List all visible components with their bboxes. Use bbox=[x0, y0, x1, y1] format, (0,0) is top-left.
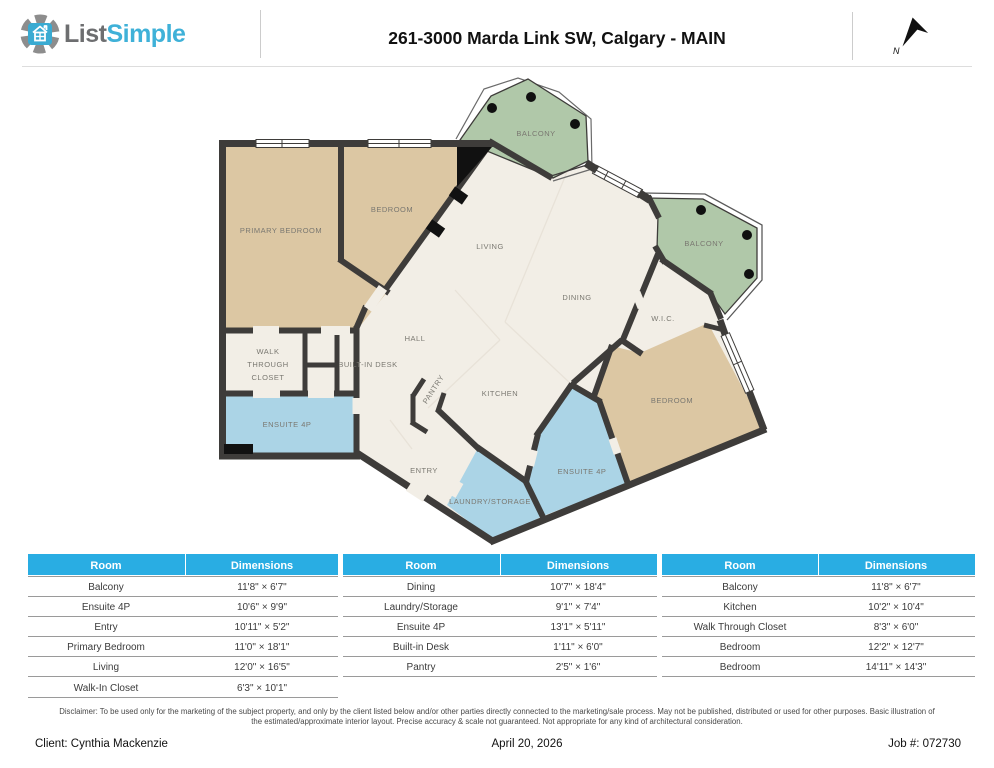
svg-text:14'11" × 14'3": 14'11" × 14'3" bbox=[866, 662, 927, 673]
svg-text:ENTRY: ENTRY bbox=[410, 466, 438, 475]
svg-text:Dimensions: Dimensions bbox=[231, 560, 293, 572]
svg-text:10'2" × 10'4": 10'2" × 10'4" bbox=[868, 602, 924, 613]
svg-text:Living: Living bbox=[93, 662, 119, 673]
svg-text:LIVING: LIVING bbox=[476, 242, 504, 251]
svg-text:BALCONY: BALCONY bbox=[684, 239, 723, 248]
svg-text:10'6" × 9'9": 10'6" × 9'9" bbox=[237, 602, 288, 613]
svg-text:8'3" × 6'0": 8'3" × 6'0" bbox=[874, 622, 919, 633]
svg-text:Bedroom: Bedroom bbox=[720, 662, 761, 673]
svg-text:BEDROOM: BEDROOM bbox=[371, 205, 413, 214]
svg-text:LAUNDRY/STORAGE: LAUNDRY/STORAGE bbox=[449, 497, 531, 506]
svg-text:Dining: Dining bbox=[407, 582, 435, 593]
svg-text:ENSUITE 4P: ENSUITE 4P bbox=[558, 467, 607, 476]
svg-text:Balcony: Balcony bbox=[88, 582, 124, 593]
svg-text:Ensuite 4P: Ensuite 4P bbox=[397, 622, 446, 633]
svg-text:W.I.C.: W.I.C. bbox=[651, 314, 674, 323]
svg-text:12'0" × 16'5": 12'0" × 16'5" bbox=[234, 662, 290, 673]
svg-text:Primary Bedroom: Primary Bedroom bbox=[67, 642, 145, 653]
svg-text:HALL: HALL bbox=[405, 334, 426, 343]
svg-text:Pantry: Pantry bbox=[407, 662, 436, 673]
svg-text:Dimensions: Dimensions bbox=[865, 560, 927, 572]
svg-text:Balcony: Balcony bbox=[722, 582, 758, 593]
svg-text:Walk-In Closet: Walk-In Closet bbox=[74, 683, 139, 694]
svg-text:12'2" × 12'7": 12'2" × 12'7" bbox=[868, 642, 924, 653]
svg-text:N: N bbox=[893, 46, 900, 56]
svg-text:10'7" × 18'4": 10'7" × 18'4" bbox=[550, 582, 606, 593]
svg-text:11'8" × 6'7": 11'8" × 6'7" bbox=[871, 582, 921, 593]
svg-text:ENSUITE 4P: ENSUITE 4P bbox=[263, 420, 312, 429]
svg-text:1'11" × 6'0": 1'11" × 6'0" bbox=[553, 642, 603, 653]
svg-text:KITCHEN: KITCHEN bbox=[482, 389, 518, 398]
svg-text:Room: Room bbox=[90, 560, 121, 572]
svg-text:11'8" × 6'7": 11'8" × 6'7" bbox=[237, 582, 287, 593]
svg-text:Laundry/Storage: Laundry/Storage bbox=[384, 602, 458, 613]
svg-text:9'1" × 7'4": 9'1" × 7'4" bbox=[556, 602, 601, 613]
svg-text:Walk Through Closet: Walk Through Closet bbox=[694, 622, 787, 633]
svg-text:Entry: Entry bbox=[94, 622, 117, 633]
svg-text:13'1" × 5'11": 13'1" × 5'11" bbox=[551, 622, 606, 633]
svg-text:CLOSET: CLOSET bbox=[251, 373, 284, 382]
svg-text:11'0" × 18'1": 11'0" × 18'1" bbox=[235, 642, 290, 653]
svg-text:BEDROOM: BEDROOM bbox=[651, 396, 693, 405]
svg-text:Bedroom: Bedroom bbox=[720, 642, 761, 653]
svg-text:Room: Room bbox=[724, 560, 755, 572]
svg-text:DINING: DINING bbox=[562, 293, 591, 302]
svg-text:BUILT-IN DESK: BUILT-IN DESK bbox=[338, 360, 397, 369]
svg-text:BALCONY: BALCONY bbox=[516, 129, 555, 138]
svg-text:2'5" × 1'6": 2'5" × 1'6" bbox=[556, 662, 601, 673]
svg-text:THROUGH: THROUGH bbox=[247, 360, 288, 369]
svg-text:WALK: WALK bbox=[257, 347, 280, 356]
svg-text:6'3" × 10'1": 6'3" × 10'1" bbox=[237, 683, 288, 694]
svg-text:Kitchen: Kitchen bbox=[723, 602, 756, 613]
svg-text:Room: Room bbox=[405, 560, 436, 572]
svg-text:10'11" × 5'2": 10'11" × 5'2" bbox=[235, 622, 290, 633]
svg-text:ListSimple: ListSimple bbox=[64, 20, 186, 48]
svg-text:Ensuite 4P: Ensuite 4P bbox=[82, 602, 131, 613]
svg-text:PRIMARY BEDROOM: PRIMARY BEDROOM bbox=[240, 226, 322, 235]
svg-text:Built-in Desk: Built-in Desk bbox=[393, 642, 450, 653]
svg-text:Dimensions: Dimensions bbox=[547, 560, 609, 572]
